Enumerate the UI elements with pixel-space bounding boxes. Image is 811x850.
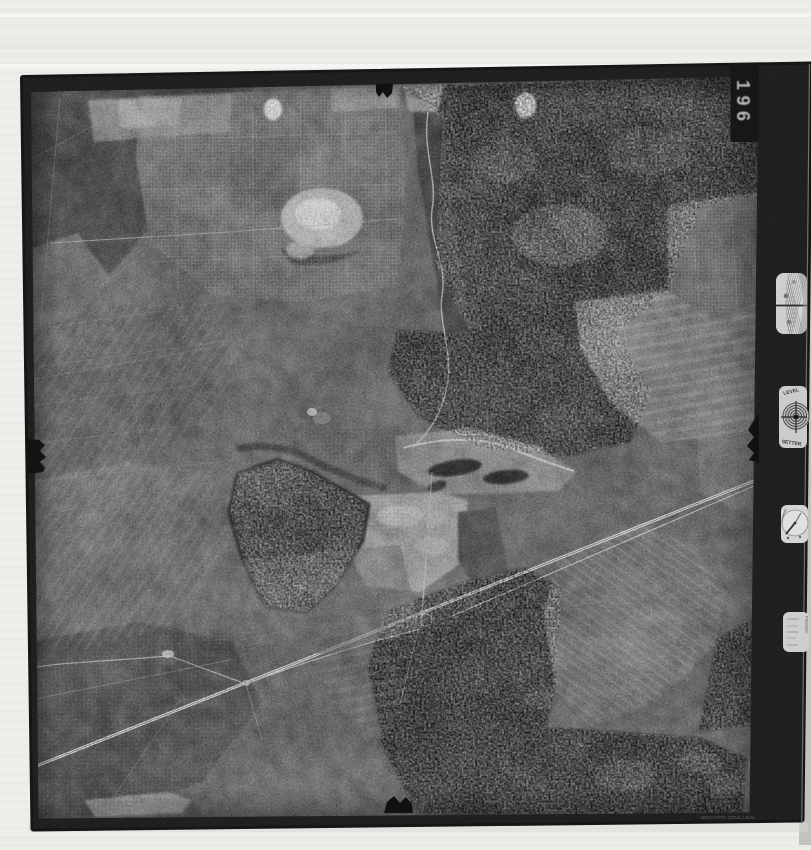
svg-text:196: 196 bbox=[733, 80, 753, 127]
svg-text:AERO FOTO CONS. I.G.M.: AERO FOTO CONS. I.G.M. bbox=[700, 815, 755, 820]
svg-text:FOGGIA: FOGGIA bbox=[804, 616, 809, 634]
